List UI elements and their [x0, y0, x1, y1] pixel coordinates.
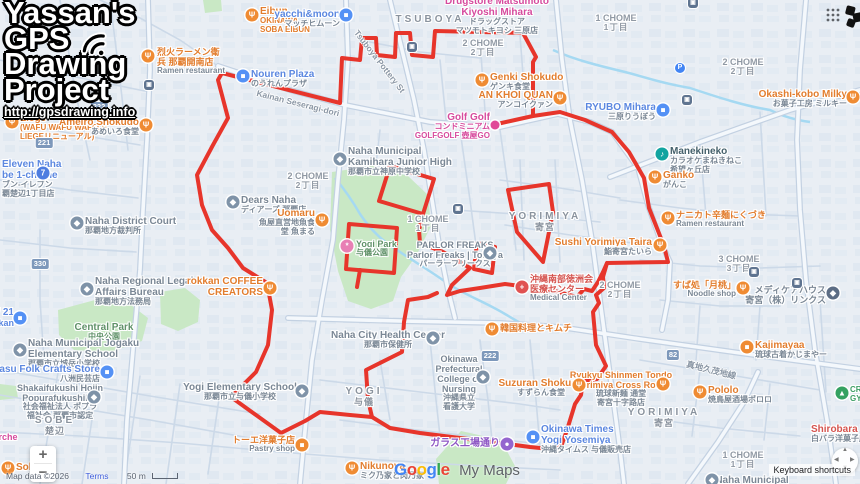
restaurant-icon[interactable]: Ψ [649, 171, 662, 184]
golf-icon[interactable] [491, 121, 500, 130]
my-maps-text: My Maps [459, 462, 520, 479]
poi-ganko[interactable]: Gankoがんこ [663, 170, 694, 190]
area-name: YORIMIYA [509, 211, 582, 222]
transit-station-icon[interactable]: ▣ [749, 267, 759, 277]
poi-yogi-elementary-school[interactable]: Yogi Elementary School那覇市立与儀小学校 [183, 382, 297, 402]
school-icon[interactable]: ◆ [334, 153, 347, 166]
area-name-jp: 2丁目 [462, 48, 503, 58]
area-name: SOBE [35, 415, 75, 426]
gym-icon[interactable]: ▲ [836, 387, 849, 400]
keyboard-shortcuts-button[interactable]: Keyboard shortcuts [769, 464, 855, 476]
logo-url[interactable]: http://gpsdrawing.info [4, 105, 135, 119]
poi-shirobara-yougashiten[interactable]: Shirobara Yougashiten白バラ洋菓子店 [811, 424, 860, 444]
area-name-jp: 与儀 [345, 397, 382, 407]
shop-orange-icon[interactable]: ■ [296, 439, 309, 452]
label-line: 沖縄南部徳洲会 [530, 274, 593, 284]
label-line: メディケアハウス [745, 285, 826, 295]
transit-station-icon[interactable]: ▣ [682, 95, 692, 105]
seven-icon[interactable]: 7 [37, 167, 50, 180]
google-logo-letter: o [417, 460, 427, 479]
poi-[interactable]: 沖縄南部徳洲会医療センターMedical Center [530, 274, 593, 303]
label-line: Marche [0, 432, 18, 442]
block-label: 2 CHOME2丁目 [722, 57, 763, 77]
civic-icon[interactable]: ◆ [427, 332, 440, 345]
label-line: Medical Center [530, 294, 593, 303]
label-line: Eleven Naha [2, 159, 61, 170]
label-line: Ramen restaurant [676, 220, 766, 229]
pan-left-icon[interactable]: ◀ [834, 456, 839, 463]
label-line: Okinawa [435, 354, 482, 364]
google-my-maps-watermark[interactable]: Google My Maps [394, 460, 520, 480]
poi-[interactable]: ナニカト辛麺にくづきRamen restaurant [676, 210, 766, 229]
google-logo-letter: g [427, 460, 437, 479]
label-line: がんこ [663, 181, 694, 190]
label-line: Ryukyu Shinmen Tondo [570, 370, 672, 380]
poi-okinawa[interactable]: OkinawaPrefecturalCollege ofNursing沖縄県立看… [435, 354, 482, 412]
label-line: GOLFGOLF 壺屋GO [415, 132, 490, 141]
poi-pololo[interactable]: Pololo焼鳥屋酒場ポロロ [708, 385, 772, 405]
block-label: 1 CHOME1丁目 [595, 13, 636, 33]
restaurant-icon[interactable]: Ψ [142, 50, 155, 63]
poi-suzuran-shokudo[interactable]: Suzuran Shokudoすずらん食堂 [499, 378, 584, 398]
label-line: すずらん食堂 [499, 389, 584, 398]
label-line: 那覇市立神原中学校 [348, 168, 452, 177]
block-label: 2 CHOME2丁目 [462, 38, 503, 58]
poi-ameiro-shokudo[interactable]: Ameiro Shokudoあめいろ食堂 [59, 117, 139, 137]
restaurant-icon[interactable]: Ψ [573, 379, 586, 392]
label-line: Noodle shop [673, 290, 736, 299]
label-line: 看護大学 [435, 403, 482, 412]
label-line: W 21 [0, 307, 14, 318]
area-name: TSUBOYA [396, 14, 465, 25]
district-label: TSUBOYA [396, 14, 465, 25]
label-line: 焼鳥屋酒場ポロロ [708, 396, 772, 405]
poi-uomaru[interactable]: Uomaru魚屋直営地魚食堂 魚まる [259, 208, 315, 237]
poi-okashi-kobo-milky[interactable]: Okashi-kobo Milkyお菓子工房 ミルキー [759, 89, 847, 109]
restaurant-icon[interactable]: Ψ [346, 462, 359, 475]
shop-icon[interactable]: ■ [527, 431, 540, 444]
label-line: 那覇市立与儀小学校 [183, 393, 297, 402]
civic-icon[interactable]: ◆ [71, 217, 84, 230]
block-label: 2 CHOME2丁目 [599, 280, 640, 300]
shop-icon[interactable]: ■ [14, 312, 27, 325]
block-label: 2 CHOME2丁目 [287, 171, 328, 191]
corner-logo [845, 4, 860, 30]
poi-naha-municipal[interactable]: Naha Municipal [715, 475, 788, 484]
poi-ryubo-mihara[interactable]: RYUBO Mihara三原りうぼう [585, 102, 656, 122]
poi-yacchi-moon[interactable]: yacchi&moonマッチヒムーン [274, 9, 340, 29]
label-line: マッチヒムーン [274, 20, 340, 29]
poi-kajimayaa[interactable]: Kajimayaa琉球古着かじまやー [755, 340, 827, 360]
block-label: 1 CHOME1丁目 [407, 214, 448, 234]
restaurant-icon[interactable]: Ψ [316, 214, 329, 227]
google-logo[interactable]: Google [394, 460, 450, 479]
scale-bar [152, 473, 178, 479]
label-line: パーラーフリークス [407, 260, 503, 269]
poi-marche[interactable]: Marche [0, 432, 18, 442]
civic-icon[interactable]: ◆ [88, 391, 101, 404]
flower-icon[interactable]: * [341, 240, 354, 253]
transit-station-icon[interactable]: ▣ [792, 278, 802, 288]
map-attribution: Map data ©2026 Terms 50 m [6, 471, 178, 481]
label-line: 那覇地方法務局 [95, 298, 193, 307]
civic-icon[interactable]: ◆ [484, 247, 497, 260]
poi-w-21[interactable]: W 21nkan [0, 307, 14, 328]
school-icon[interactable]: ◆ [296, 385, 309, 398]
label-line: GYM [850, 395, 860, 404]
civic-dark-icon[interactable]: ◆ [827, 287, 840, 300]
label-line: 堂 魚まる [259, 228, 315, 237]
shop-icon[interactable]: ■ [237, 70, 250, 83]
civic-icon[interactable]: ◆ [227, 196, 240, 209]
google-my-maps-canvas[interactable]: ΨEibunOKINAWASOBA EIBUN■yacchi&moonマッチヒム… [0, 0, 860, 484]
poi-ryukyu-shinmen-tondo[interactable]: Ryukyu Shinmen TondoYorimiya Cross Road琉… [570, 370, 672, 408]
district-label: YORIMIYA寄宮 [509, 211, 582, 232]
area-name-jp: 楚辺 [35, 426, 75, 436]
restaurant-icon[interactable]: Ψ [657, 378, 670, 391]
poi-[interactable]: ガラス工場通り [430, 438, 500, 449]
zoom-in-button[interactable]: + [30, 446, 56, 463]
purple-icon[interactable]: ● [501, 438, 514, 451]
poi-cre[interactable]: CREGYM [850, 386, 860, 404]
google-logo-letter: G [394, 460, 407, 479]
route-shield-330: 330 [32, 259, 49, 269]
poi-naha-district-court[interactable]: Naha District Court那覇地方裁判所 [85, 216, 176, 236]
route-shield-221: 221 [36, 138, 53, 148]
label-line: Pastry shop [232, 445, 295, 454]
transit-station-icon[interactable]: ▣ [688, 0, 698, 8]
area-name-jp: 寄宮 [628, 418, 701, 428]
label-line: rokkan COFFEE [187, 276, 263, 287]
cafe-icon[interactable]: Ψ [264, 282, 277, 295]
label-line: 鮨寄宮たいら [555, 248, 652, 257]
area-name-jp: 2丁目 [722, 67, 763, 77]
label-line: アンコイクァン [479, 101, 553, 110]
label-line: 覇楚辺1丁目店 [2, 190, 61, 199]
area-name: YOGI [345, 386, 382, 397]
label-line: Naha Municipal [715, 475, 788, 484]
poi-golf-golf[interactable]: Golf GolfコンドミニアムGOLFGOLF 壺屋GO [415, 112, 490, 141]
label-line: 烈火ラーメン衛 [157, 47, 225, 57]
label-line: Ramen restaurant [157, 67, 225, 76]
area-name-jp: 1丁目 [722, 460, 763, 470]
area-name: YORIMIYA [628, 407, 701, 418]
route-shield-222: 222 [482, 351, 499, 361]
label-line: あめいろ食堂 [59, 128, 139, 137]
district-label: SOBE楚辺 [35, 415, 75, 436]
label-line: 寄宮（株）リンクス [745, 295, 826, 305]
school-icon[interactable]: ◆ [477, 371, 490, 384]
district-label: YORIMIYA寄宮 [628, 407, 701, 428]
road-name-label: 真地久茂地線 [685, 358, 737, 382]
poi-naha-regional-legal[interactable]: Naha Regional LegalAffairs Bureau那覇地方法務局 [95, 276, 193, 307]
pan-up-icon[interactable]: ▲ [842, 447, 848, 453]
label-line: College of [435, 374, 482, 384]
label-line: お菓子工房 ミルキー [759, 100, 847, 109]
label-line: Naha Regional Legal [95, 276, 193, 287]
label-line: 三原りうぼう [585, 113, 656, 122]
label-line: Prefectural [435, 364, 482, 374]
restaurant-icon[interactable]: Ψ [554, 92, 567, 105]
label-line: Naha Municipal Jogaku [28, 338, 139, 349]
shop-icon[interactable]: ■ [340, 9, 353, 22]
poi-an-khoi-quan[interactable]: AN KHOI QUANアンコイクァン [479, 90, 553, 110]
area-name-jp: 2丁目 [599, 290, 640, 300]
poi-[interactable]: すば処「月桃」Noodle shop [673, 280, 736, 299]
label-line: 白バラ洋菓子店 [811, 435, 860, 444]
shop-orange-icon[interactable]: ■ [741, 341, 754, 354]
google-logo-letter: o [407, 460, 417, 479]
poi-[interactable]: 韓国料理とキムチ [500, 323, 572, 333]
karaoke-icon[interactable]: ♪ [656, 148, 669, 161]
area-name-jp: 2丁目 [287, 181, 328, 191]
shop-icon[interactable]: ■ [657, 104, 670, 117]
parking-icon[interactable]: P [675, 63, 685, 73]
restaurant-icon[interactable]: Ψ [694, 386, 707, 399]
poi-sushi-yorimiya-taira[interactable]: Sushi Yorimiya Taira鮨寄宮たいら [555, 237, 652, 257]
area-name-jp: 寄宮 [509, 222, 582, 232]
restaurant-icon[interactable]: Ψ [140, 119, 153, 132]
poi-rokkan-coffee[interactable]: rokkan COFFEECREATORS [187, 276, 263, 298]
label-line: 琉球古着かじまやー [755, 351, 827, 360]
poi-yogi-park[interactable]: Yogi Park与儀公園 [356, 239, 397, 258]
transit-station-icon[interactable]: ▣ [144, 80, 154, 90]
area-name-jp: 1丁目 [595, 23, 636, 33]
label-line: マツモトキヨシ 三原店 [445, 27, 549, 36]
school-icon[interactable]: ◆ [14, 344, 27, 357]
poi-[interactable]: トーエ洋菓子店Pastry shop [232, 435, 295, 454]
label-line: Okinawa Times [541, 424, 631, 435]
poi-[interactable]: メディケアハウス寄宮（株）リンクス [745, 285, 826, 305]
area-name-jp: 1丁目 [407, 224, 448, 234]
google-logo-letter: e [441, 460, 450, 479]
apps-grid-icon[interactable] [826, 8, 840, 22]
transit-station-icon[interactable]: ▣ [453, 204, 463, 214]
label-line: CREATORS [187, 287, 263, 298]
block-label: 1 CHOME1丁目 [722, 450, 763, 470]
hospital-icon[interactable]: + [516, 281, 529, 294]
restaurant-icon[interactable]: Ψ [486, 323, 499, 336]
road-name-label: Tsuboya Pottery St [352, 28, 407, 95]
restaurant-icon[interactable]: Ψ [654, 239, 667, 252]
restaurant-icon[interactable]: Ψ [476, 74, 489, 87]
civic-icon[interactable]: ◆ [706, 474, 719, 484]
civic-icon[interactable]: ◆ [81, 283, 94, 296]
poi-eleven-naha[interactable]: Eleven Nahabe 1-chomeブン-イレブン覇楚辺1丁目店 [2, 159, 61, 199]
scale-text: 50 m [127, 471, 146, 481]
label-line: ガラス工場通り [430, 438, 500, 449]
shop-icon[interactable]: ■ [101, 366, 114, 379]
label-line: 韓国料理とキムチ [500, 323, 572, 333]
map-data-text: Map data ©2026 [6, 471, 69, 481]
road-name-label: Kainan Seseragi-dori [256, 88, 341, 118]
poi-okinawa-times[interactable]: Okinawa TimesYogi Yosemiya沖縄タイムス 与儀販売店 [541, 424, 631, 455]
pan-right-icon[interactable]: ▶ [850, 456, 855, 463]
label-line: nkan [0, 318, 14, 328]
restaurant-icon[interactable]: Ψ [246, 9, 259, 22]
poi-yasu-folk-crafts-store[interactable]: Yasu Folk Crafts Store八洲民芸店 [0, 364, 100, 384]
label-line: 沖縄タイムス 与儀販売店 [541, 446, 631, 455]
restaurant-icon[interactable]: Ψ [662, 212, 675, 225]
site-logo: Yassan's GPS Drawing Project http://gpsd… [4, 0, 135, 119]
terms-link[interactable]: Terms [85, 471, 108, 481]
district-label: YOGI与儀 [345, 386, 382, 407]
poi-nouren-plaza[interactable]: Nouren Plazaのうれんプラザ [251, 69, 314, 89]
route-shield-82: 82 [667, 350, 679, 360]
poi-[interactable]: 烈火ラーメン衛兵 那覇開南店Ramen restaurant [157, 47, 225, 76]
label-line: 与儀公園 [356, 249, 397, 258]
label-line: Naha Municipal [348, 146, 452, 157]
restaurant-icon[interactable]: Ψ [847, 91, 860, 104]
restaurant-icon[interactable]: Ψ [737, 282, 750, 295]
poi-naha-municipal[interactable]: Naha MunicipalKamihara Junior High那覇市立神原… [348, 146, 452, 177]
transit-station-icon[interactable]: ▣ [407, 42, 417, 52]
label-line: 那覇地方裁判所 [85, 227, 176, 236]
